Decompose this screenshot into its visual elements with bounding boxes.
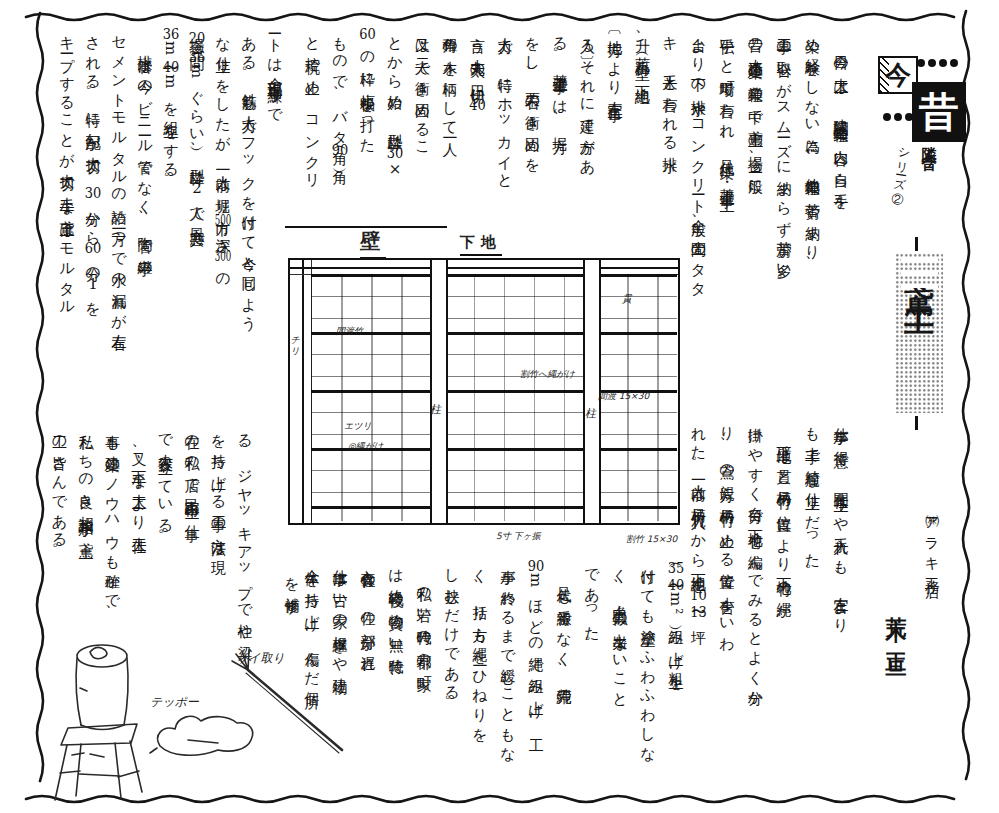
text-column: をし、栗石の衝き固めを <box>518 26 546 232</box>
text-column: とから始め、型枠は30× <box>381 26 409 232</box>
text-column: 36m〜40mを組立をする。 <box>158 26 184 418</box>
diagram-annotation: 壁 <box>360 228 386 259</box>
article-section-left: ートは全部現場手練りである。鉄筋も人力でフックを付けて今と同じような仕上りをした… <box>54 26 288 418</box>
badge-past-char: 昔 <box>919 88 959 135</box>
text-column: 今日の大工は、建設関連業種の内容に自ら手を <box>827 26 856 414</box>
text-column: は終戦後の物資の無い時代で、 <box>382 558 410 800</box>
tool-illustrations <box>40 628 350 806</box>
article-title-box: 鳶土工 <box>895 253 943 413</box>
article-section-short-columns: キ、手人と言われる排水升、荒（粗）壁の下地組〔地方により左官工事に入る〕それに建… <box>298 26 683 232</box>
dots-decoration-top <box>917 59 958 67</box>
diagram-annotation: テッポー <box>150 694 199 711</box>
series-number: シリーズ② <box>889 138 914 198</box>
diagram-annotation: 下地 <box>460 233 502 256</box>
dots-decoration-left <box>883 113 913 121</box>
diagram-annotation: サイ取り <box>236 650 285 667</box>
text-column: 言う太丸太の小口切に40 <box>463 26 491 232</box>
text-column: 付けても塗壁がふわふわしな <box>634 558 662 800</box>
text-column: 排水管は今のビニール管でなく、陶管で継手の <box>132 26 158 418</box>
article-section-under-title: 仕事が得意で、土間仕上りや手入れも、左官よりも上手で綺麗な仕上りだった。 壁下地… <box>680 416 855 798</box>
diagram-annotation: ◎縄がけ <box>348 440 383 453</box>
byline-company: ㈱アラキ工務店 <box>922 504 941 575</box>
text-column: 衣食住の、住の部分が遅れ、 <box>354 558 382 800</box>
article-title: 鳶土工 <box>895 253 943 418</box>
text-column: 昔の木造建築の業種の中で鳶土工の場合、一般に <box>741 26 770 414</box>
text-column: 足代も番線でなく、荒縄の <box>550 558 578 800</box>
text-column: く、中々真似の出来ないこと <box>606 558 634 800</box>
text-column: と控杭で止め、コンクリ <box>298 26 326 232</box>
diagram-annotation: チリ <box>288 330 301 351</box>
diagram-bay-lattice <box>311 274 430 521</box>
text-column: 壁下地は貫と柄吊竹の位置により下地竹の縄が <box>770 416 799 798</box>
text-column: 掛けやすく自分で下地竹を編んでみるとよく分か <box>741 416 770 798</box>
diagram-annotation: 間渡 15×30 <box>598 390 649 403</box>
diagram-annotation: 割竹 15×30 <box>626 533 677 546</box>
text-column: 台より下の排水やコンクリート全般、土間のタタ <box>684 26 713 414</box>
mortar-bucket-on-stool-drawing <box>55 645 142 800</box>
diagram-annotation: 柱 <box>585 406 596 421</box>
text-column: （35〜40m²）組み上げ粗土を <box>662 558 690 800</box>
text-column: る。基礎工事では、堀方 <box>546 26 574 232</box>
diagram-annotation: 5寸 下ヶ振 <box>496 530 541 543</box>
badge-now-char: 今 <box>885 60 911 90</box>
diagram-annotation: エツリ <box>344 420 372 433</box>
text-column: ある。鉄筋も人力でフックを付けて今と同じよう <box>236 26 262 418</box>
title-char: 工 <box>901 284 938 288</box>
diagram-post <box>430 260 448 523</box>
article-section-bottom-middle: （35〜40m²）組み上げ粗土を付けても塗壁がふわふわしなく、中々真似の出来ない… <box>298 558 690 800</box>
text-column: される。特に勾配が大切で、30分から60分の1を <box>80 26 106 418</box>
text-column: セメントモルタルの詰め方一つで水の漏れが左右 <box>106 26 132 418</box>
title-rule-top <box>915 237 918 251</box>
diagram-annotation: 柱 <box>430 402 441 417</box>
text-column: 仕事が得意で、土間仕上りや手入れも、左官より <box>827 416 856 798</box>
text-column: キープすることが大切で上手な鳶土工はモルタル <box>54 26 80 418</box>
text-column: 角程の木を柄にして一人 <box>436 26 464 232</box>
teppo-tool-drawing <box>150 716 253 755</box>
border-top <box>26 14 954 20</box>
text-column: し挟むだけである。 <box>438 558 466 800</box>
newsletter-page: 今 昔 隣人今昔 シリーズ② 鳶土工 ㈱アラキ工務店 荒木 正亘 今日の大工は、… <box>0 0 999 813</box>
text-column: 入る〕それに建て方があ <box>573 26 601 232</box>
diagram-annotation: 間渡竹 <box>336 325 363 338</box>
text-column: も上手で綺麗な仕上りだった。 <box>798 416 827 798</box>
text-column: キ、手人と言われる排水 <box>656 26 684 232</box>
article-section-intro: 今日の大工は、建設関連業種の内容に自ら手を染め経験をしない為に、他業種の苦労や納… <box>680 26 855 414</box>
article-hanging-column: を補修す <box>282 566 301 608</box>
text-column: 工事の取合いがスムーズに納まらず苦労が多い。 <box>770 26 799 414</box>
text-column: 〔地方により左官工事に <box>601 26 629 232</box>
text-column: な仕上りをしたが、一人前は堀り方巾500深さ300の <box>210 26 236 418</box>
text-column: 人力で、特にホッカイと <box>491 26 519 232</box>
badge-past-box: 昔 <box>912 82 966 142</box>
text-column: く、括り方も縄を一ひねりを <box>466 558 494 800</box>
text-column: 90mほどの縄で組み上げ、工 <box>522 558 550 800</box>
byline-author: 荒木 正亘 <box>882 600 910 646</box>
title-char: 鳶 <box>901 258 938 262</box>
text-column: 60の枠に小幅板を打った <box>353 26 381 232</box>
text-column: 升、荒（粗）壁の下地組 <box>628 26 656 232</box>
diagram-bay-lattice <box>444 274 583 521</box>
text-column: り、鳶の親方に柄吊竹の止める位置で小言をいわ <box>713 416 742 798</box>
diagram-annotation: 貫 <box>622 292 632 306</box>
text-column: もので、バタ角（90角） <box>326 26 354 232</box>
text-column: 叉は二人で衝き固めるこ <box>408 26 436 232</box>
text-column: であった。 <box>578 558 606 800</box>
text-column: 私の若い時代の京都の町家 <box>410 558 438 800</box>
title-rule-bottom <box>915 416 918 430</box>
series-title: 隣人今昔 <box>919 134 938 146</box>
text-column: 手伝いと町場で言われ、足代架け・基礎工事・土 <box>713 26 742 414</box>
title-char: 土 <box>901 271 938 275</box>
text-column: 事が終わるまで緩むこともな <box>494 558 522 800</box>
diagram-annotation: 割竹へ縄がけ <box>520 368 575 381</box>
text-column: 染め経験をしない為に、他業種の苦労や納まり、 <box>798 26 827 414</box>
text-column: 場合20間（36mぐらい）、型枠は2人で風窓共で、 <box>184 26 210 418</box>
